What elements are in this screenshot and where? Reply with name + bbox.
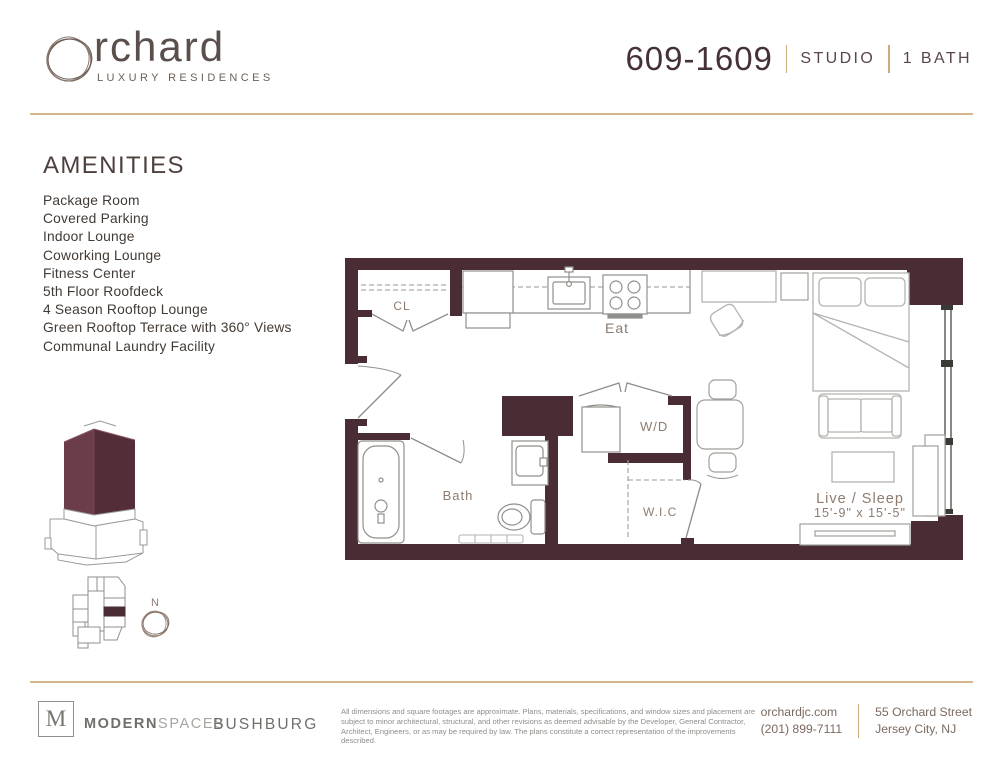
closet-bifold-doors <box>372 314 448 331</box>
amenity-item: Covered Parking <box>43 210 292 228</box>
amenity-item: Coworking Lounge <box>43 247 292 265</box>
unit-info: 609-1609 STUDIO 1 BATH <box>625 40 972 78</box>
bath-mat <box>459 535 523 543</box>
address-line1: 55 Orchard Street <box>875 704 972 721</box>
north-label: N <box>151 597 159 609</box>
unit-number: 609-1609 <box>625 40 772 78</box>
entry-door <box>358 366 401 418</box>
building-tower <box>64 429 135 515</box>
tv-console <box>800 524 910 545</box>
bath-door <box>411 438 464 463</box>
side-table <box>781 273 808 300</box>
kitchen-sink <box>548 267 590 309</box>
divider <box>786 45 788 73</box>
website: orchardjc.com <box>761 704 843 721</box>
refrigerator <box>463 271 513 328</box>
building-base <box>45 509 147 565</box>
sofa <box>819 394 901 438</box>
footer-divider <box>30 681 973 683</box>
amenity-item: 5th Floor Roofdeck <box>43 283 292 301</box>
coffee-table <box>832 452 894 482</box>
amenity-item: Communal Laundry Facility <box>43 338 292 356</box>
toilet <box>498 500 545 534</box>
amenities-section: AMENITIES Package Room Covered Parking I… <box>43 152 292 356</box>
wic-label: W.I.C <box>643 505 677 519</box>
contact-web-phone: orchardjc.com (201) 899-7111 <box>761 704 843 738</box>
wd-bifold-doors <box>579 383 672 396</box>
wd-label: W/D <box>640 419 668 434</box>
accent-chair <box>707 302 745 339</box>
unit-baths: 1 BATH <box>903 50 972 68</box>
address-line2: Jersey City, NJ <box>875 721 972 738</box>
bath-label: Bath <box>443 488 474 503</box>
dining-table <box>697 400 743 449</box>
bathroom-vanity <box>512 441 548 485</box>
bed <box>813 273 909 391</box>
modern-spaces-logo-letter: M <box>46 706 66 732</box>
bushburg-wordmark: BUSHBURG <box>213 716 318 734</box>
eat-label: Eat <box>605 320 629 336</box>
brand-tagline: LUXURY RESIDENCES <box>97 72 274 84</box>
building-illustration <box>36 412 166 567</box>
amenities-title: AMENITIES <box>43 152 292 180</box>
amenity-item: Package Room <box>43 192 292 210</box>
divider <box>888 45 890 73</box>
amenity-item: Green Rooftop Terrace with 360° Views <box>43 319 292 337</box>
divider <box>858 704 859 738</box>
dresser <box>913 435 945 516</box>
modern-spaces-logo: M <box>38 701 74 737</box>
stove <box>603 275 647 318</box>
wic-dashed-storage <box>628 460 685 540</box>
header-divider <box>30 113 973 115</box>
living-dimensions: 15'-9" x 15'-5" <box>814 506 906 520</box>
keyplan-unit-highlight <box>104 607 125 616</box>
legal-disclaimer: All dimensions and square footages are a… <box>341 707 767 746</box>
kitchen-counter <box>513 270 690 313</box>
contact-info: orchardjc.com (201) 899-7111 55 Orchard … <box>761 704 972 738</box>
amenities-list: Package Room Covered Parking Indoor Loun… <box>43 192 292 356</box>
keyplan: N <box>62 574 187 659</box>
brand-logo: rchard LUXURY RESIDENCES <box>40 24 274 88</box>
modern-spaces-wordmark: MODERNSPACES <box>84 716 225 732</box>
contact-address: 55 Orchard Street Jersey City, NJ <box>875 704 972 738</box>
phone: (201) 899-7111 <box>761 721 843 738</box>
living-label: Live / Sleep <box>816 491 904 507</box>
amenity-item: 4 Season Rooftop Lounge <box>43 301 292 319</box>
building-parapet <box>84 421 116 426</box>
orchard-o-scribble-icon <box>40 30 98 88</box>
unit-type: STUDIO <box>800 50 875 68</box>
bench <box>702 271 776 302</box>
bathtub <box>358 441 404 543</box>
washer <box>582 405 620 452</box>
modern-spaces-name-bold: MODERN <box>84 716 158 732</box>
floorplan-drawing: CL Eat <box>345 256 965 560</box>
north-compass: N <box>139 597 171 640</box>
wic-door <box>686 480 701 538</box>
amenity-item: Indoor Lounge <box>43 228 292 246</box>
brand-name: rchard <box>94 24 274 70</box>
closet-label: CL <box>393 299 410 313</box>
floorplan-flyer-page: rchard LUXURY RESIDENCES 609-1609 STUDIO… <box>0 0 1003 768</box>
amenity-item: Fitness Center <box>43 265 292 283</box>
